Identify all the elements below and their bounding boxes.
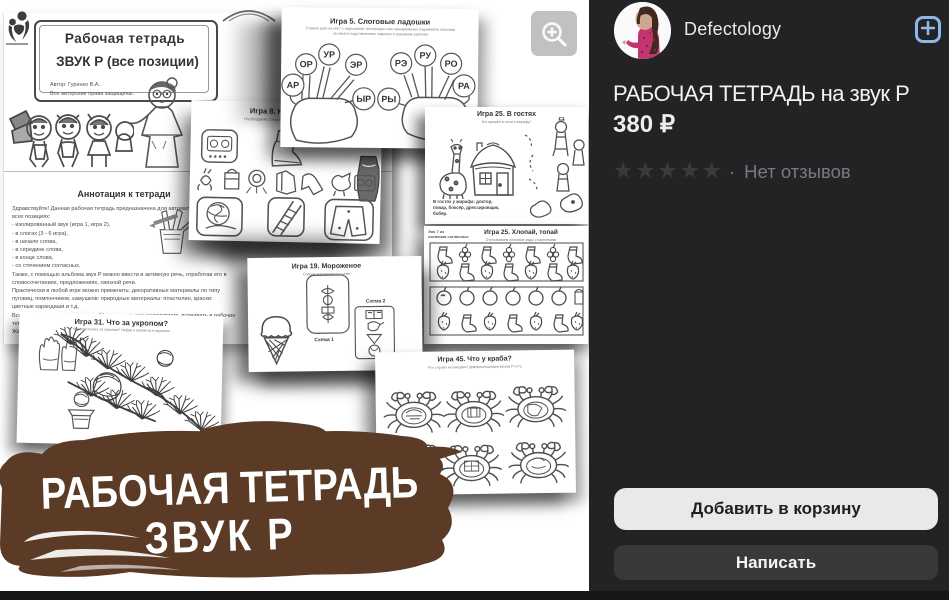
svg-text:УР: УР	[323, 49, 335, 59]
svg-text:РЫ: РЫ	[381, 94, 396, 104]
svg-text:ЫР: ЫР	[356, 94, 371, 104]
svg-text:ЭР: ЭР	[350, 60, 363, 70]
svg-text:АР: АР	[287, 80, 300, 90]
svg-text:РО: РО	[445, 59, 458, 69]
svg-text:ОР: ОР	[300, 59, 313, 69]
svg-text:РЭ: РЭ	[395, 58, 408, 68]
svg-text:РА: РА	[458, 81, 470, 91]
svg-text:РУ: РУ	[419, 50, 431, 60]
